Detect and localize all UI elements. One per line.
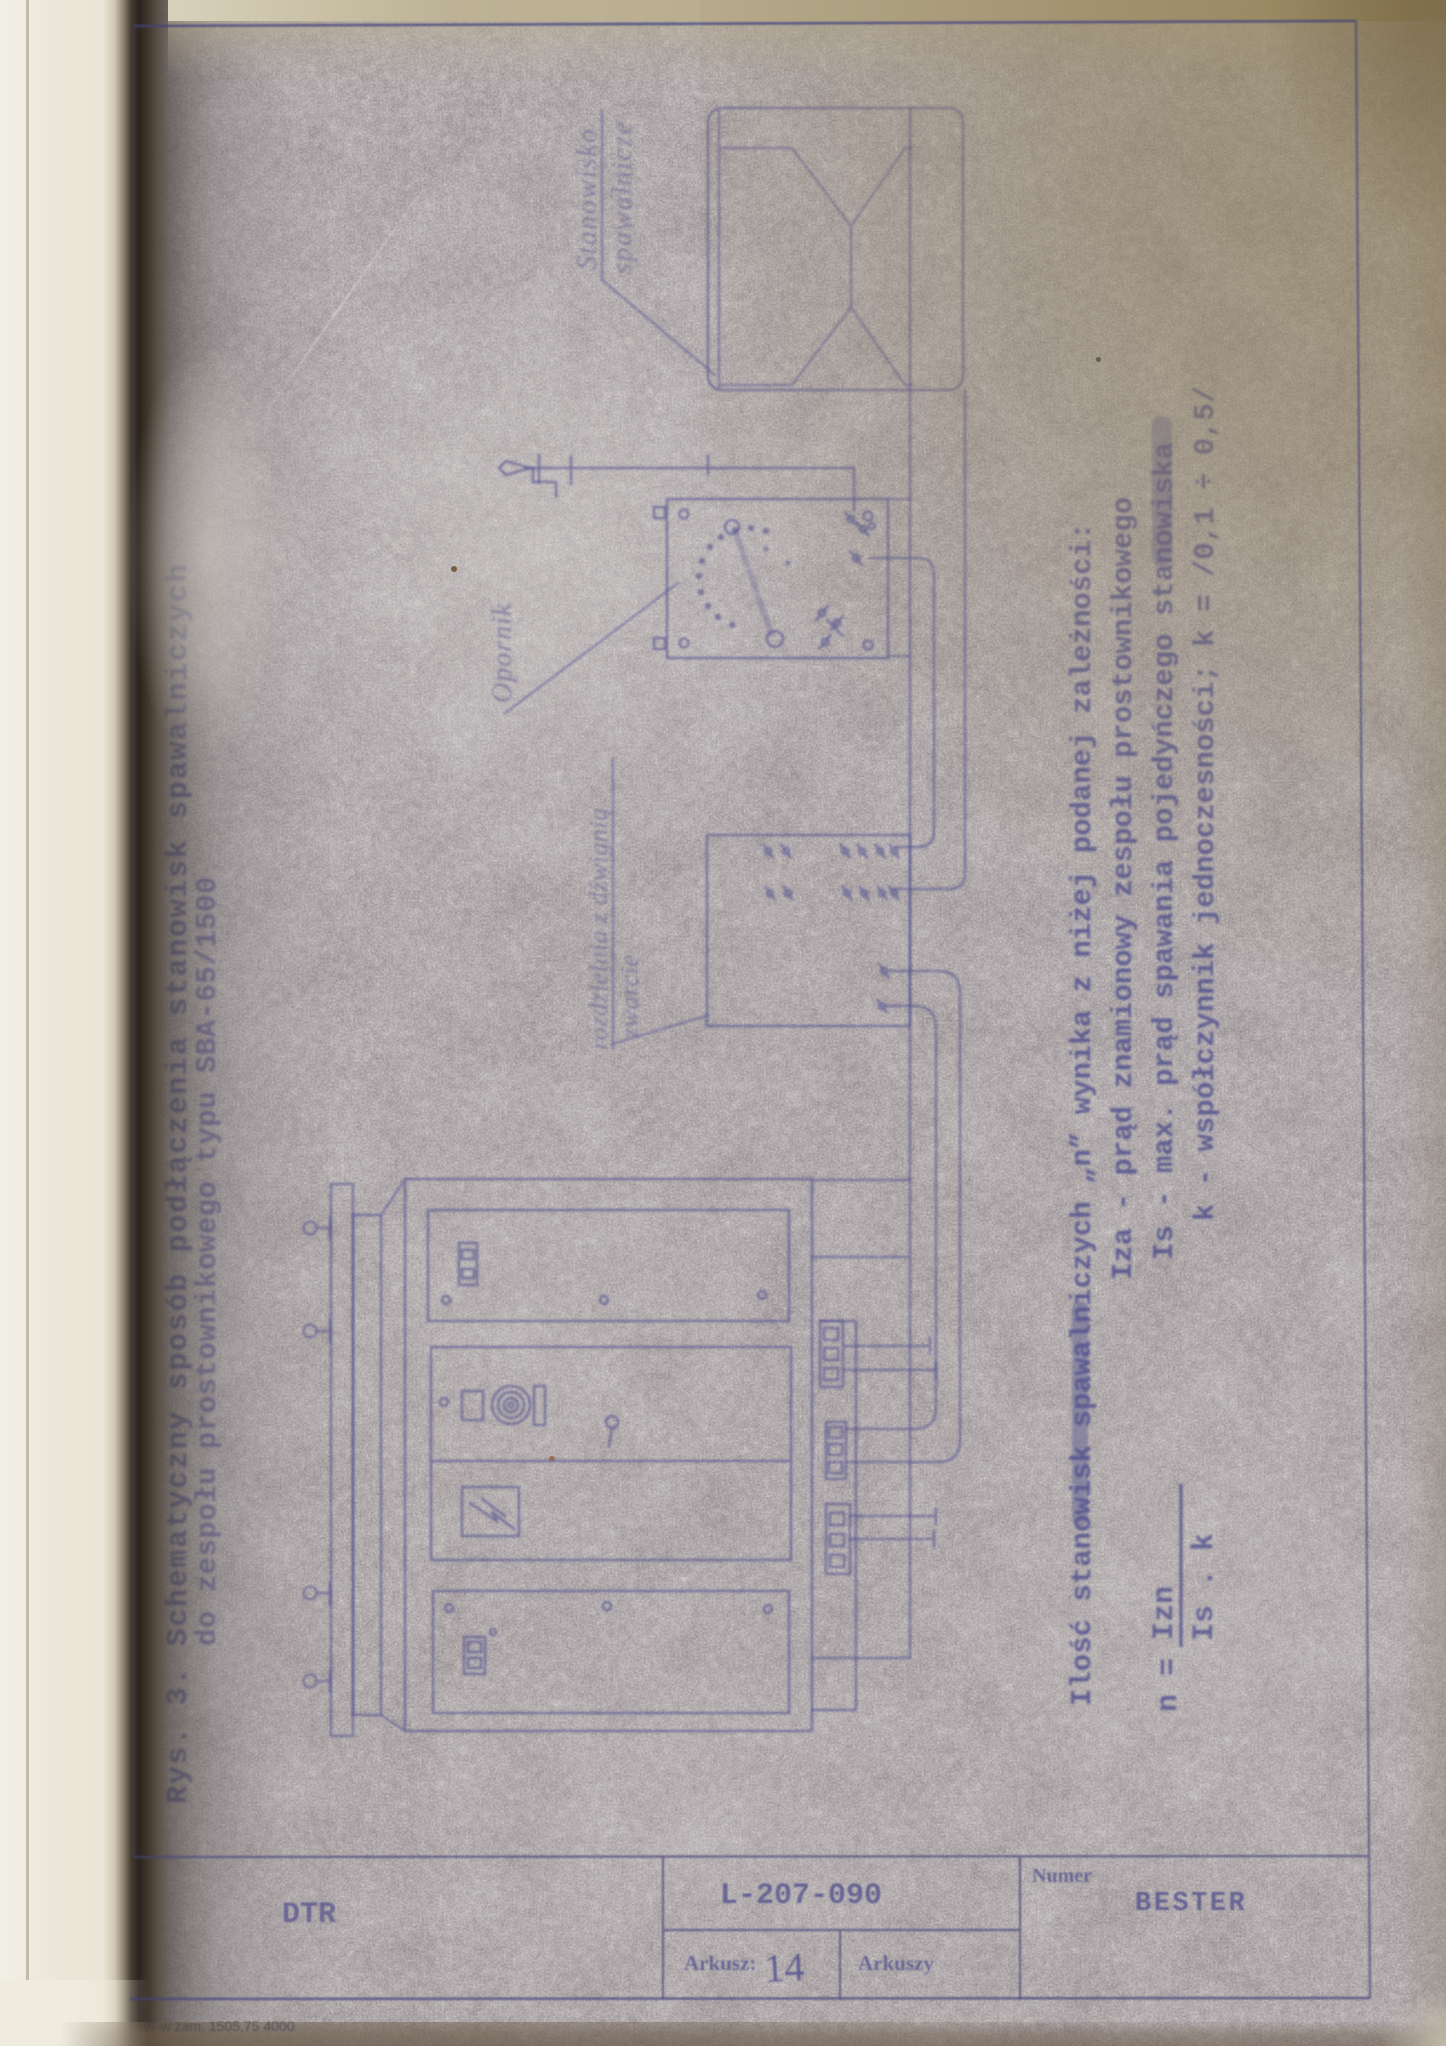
svg-text:W-w zam. 1505,75 4000: W-w zam. 1505,75 4000: [143, 2018, 295, 2034]
svg-text:Numer: Numer: [1032, 1865, 1092, 1887]
svg-text:DTR: DTR: [282, 1898, 336, 1932]
svg-text:L-207-090: L-207-090: [720, 1879, 882, 1913]
svg-text:Arkusz:: Arkusz:: [684, 1951, 756, 1975]
svg-text:Arkuszy: Arkuszy: [858, 1951, 934, 1975]
svg-text:BESTER: BESTER: [1135, 1889, 1247, 1919]
svg-text:14: 14: [763, 1944, 805, 1991]
